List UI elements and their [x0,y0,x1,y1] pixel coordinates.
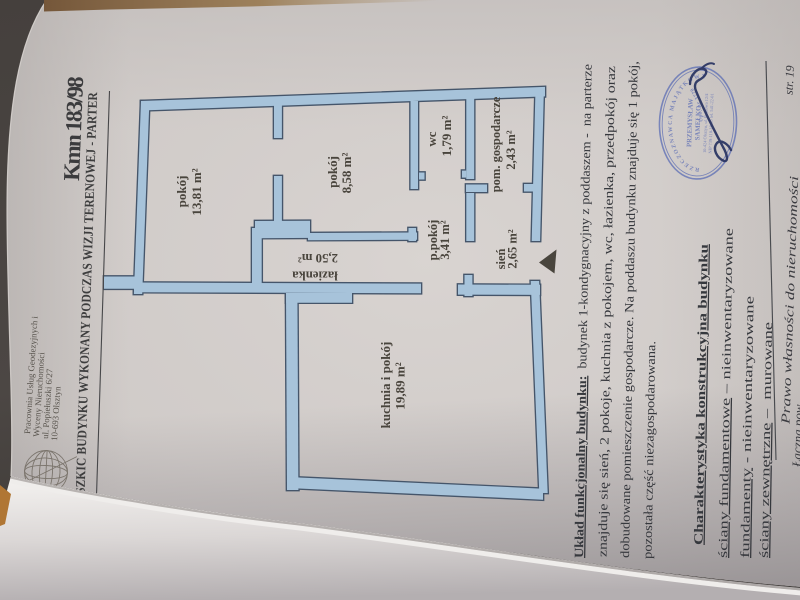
svg-text:kuchnia i pokój: kuchnia i pokój [378,342,393,429]
svg-text:3,41 m²: 3,41 m² [438,220,452,259]
svg-text:pokój: pokój [174,176,189,208]
svg-text:pom. gospodarcze: pom. gospodarcze [489,96,503,192]
svg-text:wc: wc [424,131,439,146]
svg-text:łazienka: łazienka [292,269,338,283]
svg-text:2,50 m²: 2,50 m² [298,251,338,265]
svg-text:13,81 m²: 13,81 m² [189,168,204,215]
svg-text:pokój: pokój [325,156,340,188]
svg-text:19,89 m²: 19,89 m² [393,362,408,409]
svg-text:1,79 m²: 1,79 m² [439,116,454,157]
svg-text:Łączna pow.: Łączna pow. [789,402,800,468]
svg-text:8,58 m²: 8,58 m² [339,153,354,194]
svg-text:SAMEŁKO: SAMEŁKO [694,106,702,141]
svg-text:2,43 m²: 2,43 m² [504,130,518,169]
svg-text:str. 19: str. 19 [782,65,798,95]
svg-text:2,65 m²: 2,65 m² [506,229,520,268]
